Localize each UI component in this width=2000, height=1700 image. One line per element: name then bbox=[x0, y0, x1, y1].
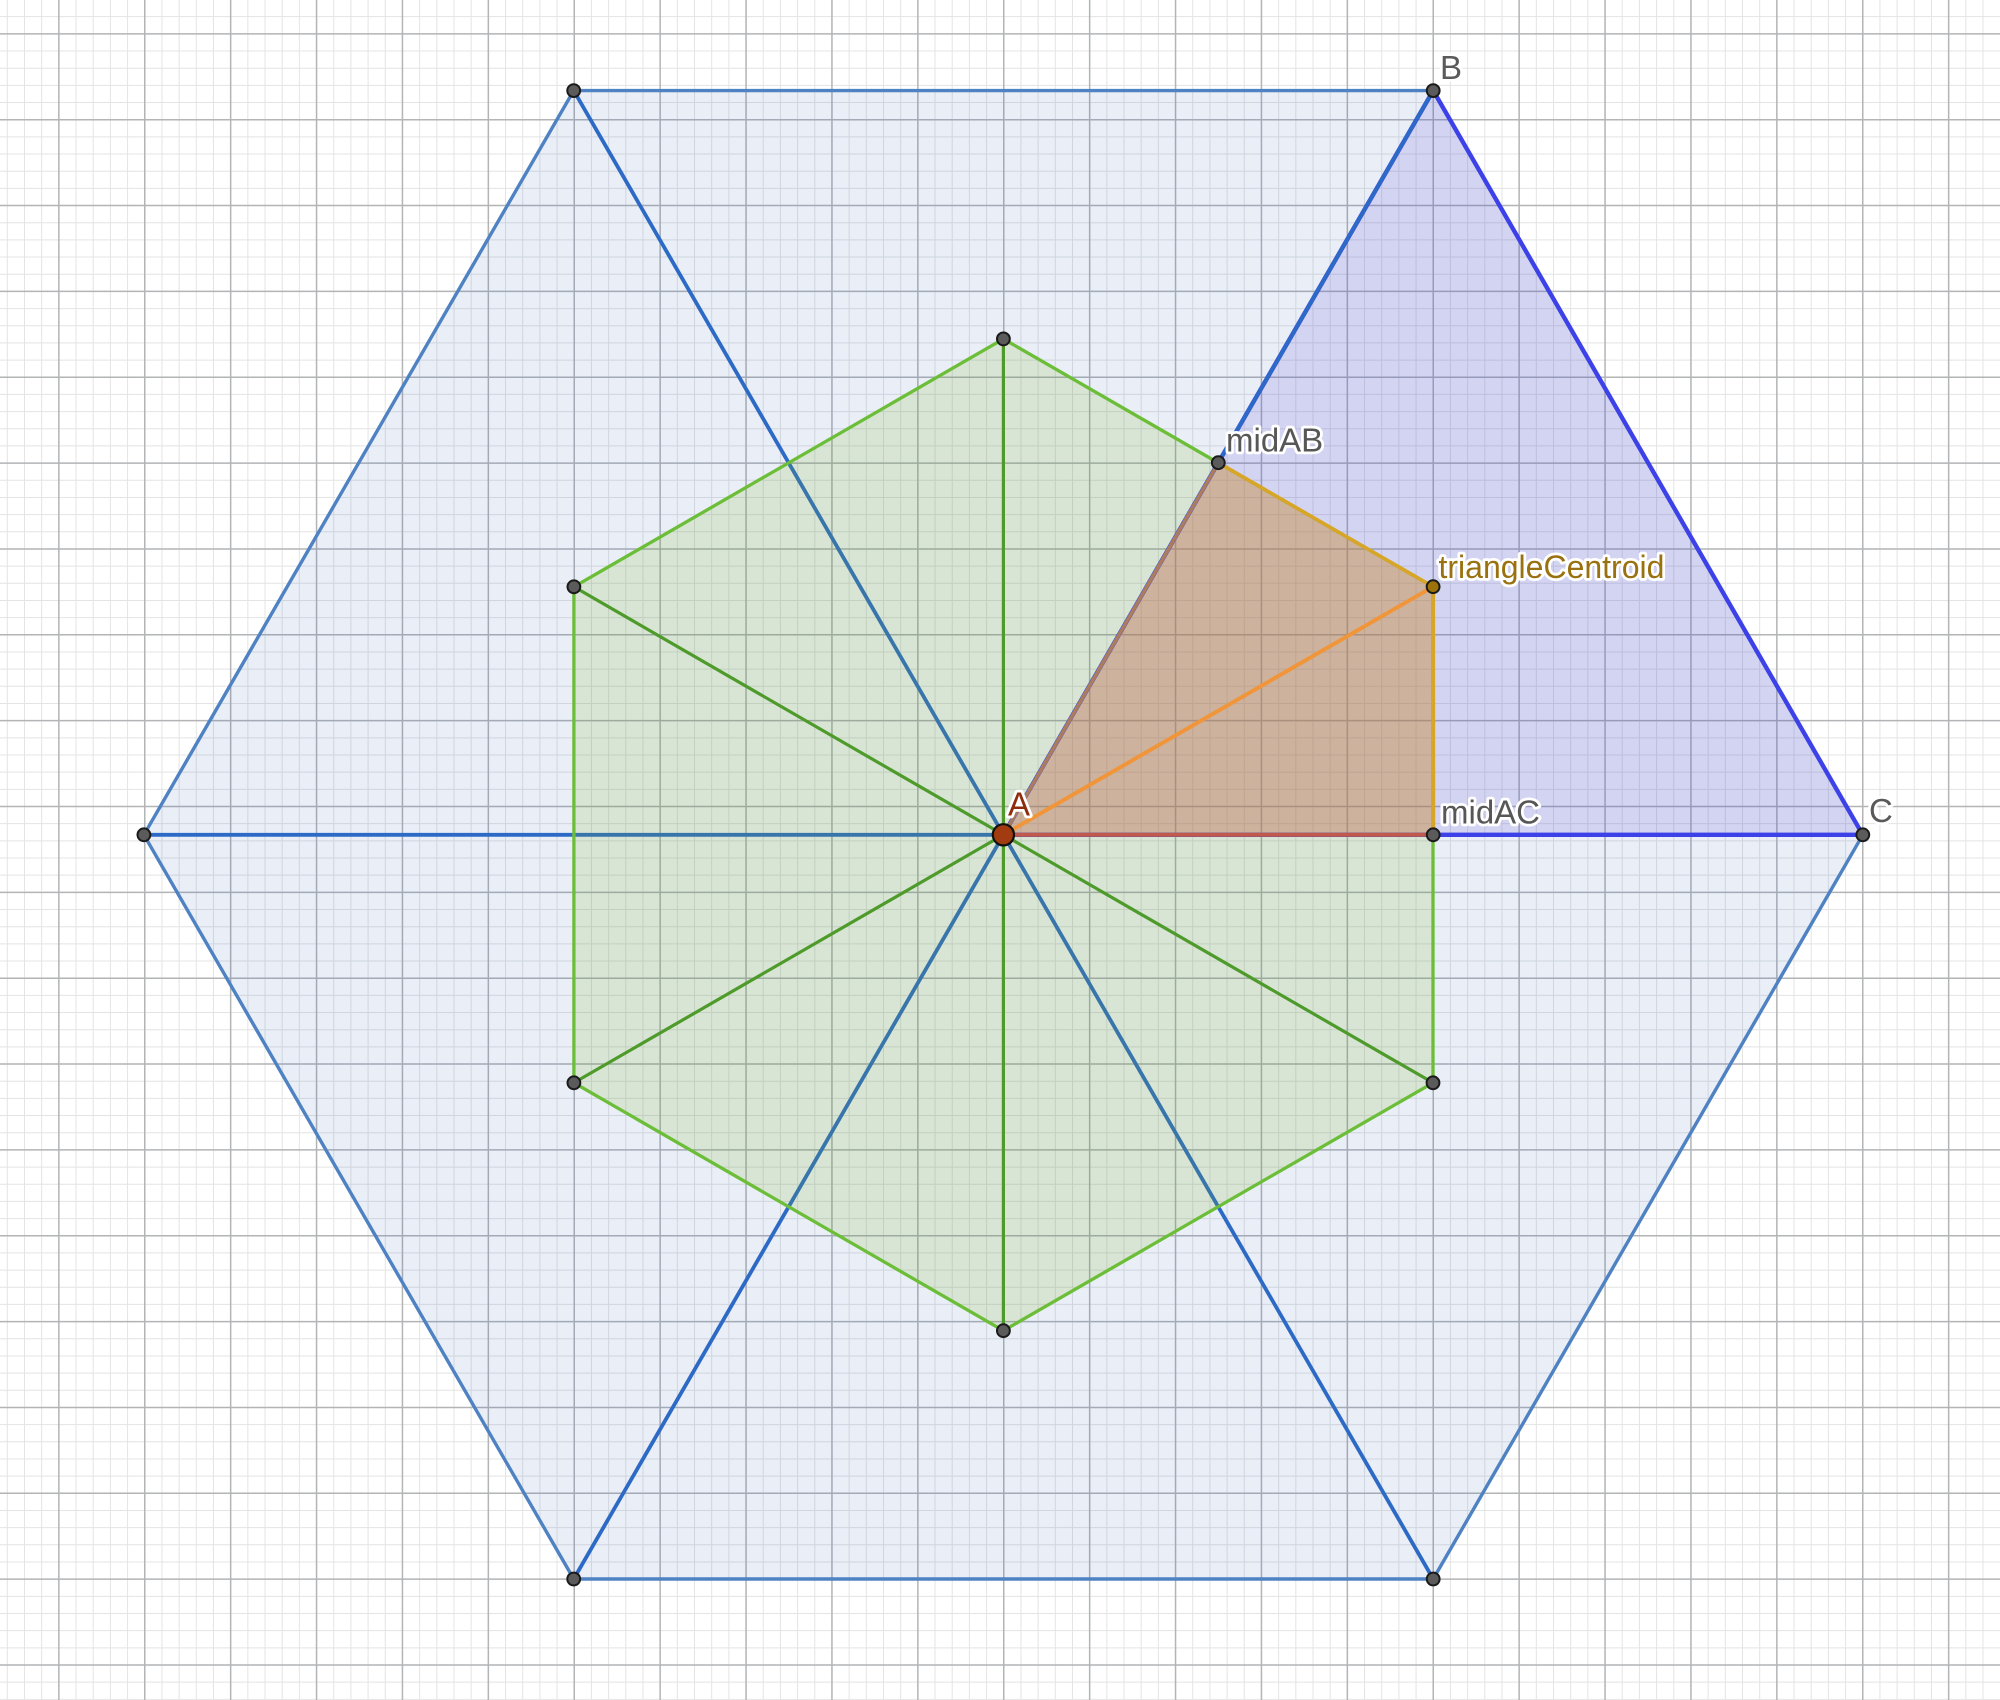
svg-text:triangleCentroid: triangleCentroid bbox=[1439, 549, 1665, 585]
svg-text:C: C bbox=[1869, 792, 1893, 829]
svg-text:midAB: midAB bbox=[1226, 422, 1323, 459]
svg-text:B: B bbox=[1440, 49, 1462, 86]
svg-text:midAC: midAC bbox=[1441, 794, 1540, 831]
svg-text:A: A bbox=[1008, 786, 1030, 823]
